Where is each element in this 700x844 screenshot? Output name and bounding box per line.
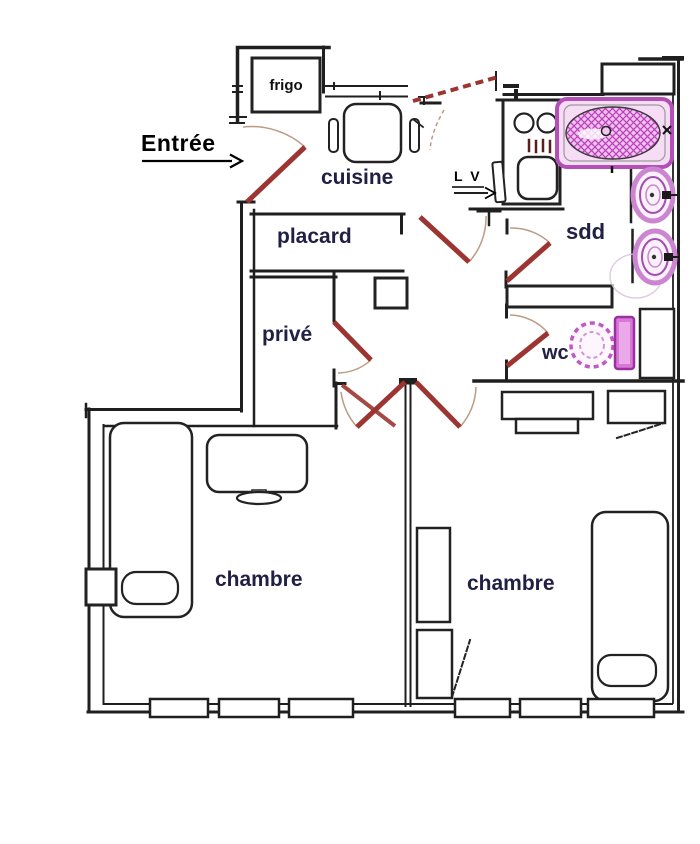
bathtub-icon: [557, 99, 672, 173]
kitchen-table-icon: [344, 104, 401, 162]
entrance-door-arc: [243, 127, 305, 147]
floor-plan: Entrée frigo cuisine L V placard privé s…: [0, 0, 700, 844]
window-icon: [520, 699, 581, 717]
lv-arrow: [452, 187, 495, 199]
window-icon: [455, 699, 510, 717]
entree-label: Entrée: [141, 130, 216, 157]
kitchen-door-arc: [430, 110, 444, 150]
desk-icon: [502, 392, 593, 419]
entrance-door: [247, 147, 305, 202]
desk-drawer: [516, 419, 578, 433]
window-icon: [289, 699, 353, 717]
pillow: [122, 572, 178, 604]
frigo-label: frigo: [252, 58, 320, 112]
window-icon: [588, 699, 654, 717]
sdd-label: sdd: [566, 219, 605, 245]
pillow: [598, 655, 656, 686]
placard-label: placard: [277, 225, 352, 249]
washbasin-icon: [610, 231, 680, 298]
radiator-shelf-icon: [507, 286, 612, 307]
right-bedroom-door: [416, 382, 460, 427]
wardrobe-open-door: [452, 640, 470, 697]
wc-closet: [640, 309, 674, 378]
wall-box: [86, 569, 116, 605]
floor-plan-drawing: [0, 0, 700, 844]
lave-vaisselle-label: L V: [454, 168, 482, 184]
window-icon: [150, 699, 208, 717]
toilet-icon: [571, 317, 634, 369]
right-bedroom-door-arc: [460, 387, 476, 427]
annotations: [142, 155, 495, 199]
hall-kitchen-door: [420, 217, 469, 262]
kitchen-door: [413, 77, 498, 101]
left-bedroom-door: [342, 385, 395, 426]
cuisine-label: cuisine: [321, 166, 393, 190]
table-base: [237, 492, 281, 504]
cabinet: [608, 391, 665, 423]
window-icon: [219, 699, 279, 717]
chambre-right-label: chambre: [467, 572, 555, 596]
sdd-door-arc: [510, 228, 550, 243]
prive-door-arc: [338, 360, 371, 373]
pedestal-table-icon: [207, 435, 307, 492]
prive-label: privé: [262, 323, 312, 347]
wardrobe-icon: [417, 528, 450, 622]
prive-door: [334, 322, 371, 360]
stove-icon: [515, 114, 534, 133]
stove-icon: [538, 114, 557, 133]
windows: [150, 699, 654, 717]
hall-kitchen-door-arc: [469, 216, 486, 262]
sdd-door: [507, 243, 550, 281]
chair-icon: [329, 119, 338, 152]
wardrobe-icon: [417, 630, 452, 698]
kitchen-sink-icon: [518, 157, 557, 199]
cabinet-open-door: [617, 423, 664, 438]
wc-door-arc: [510, 315, 548, 333]
wc-label: wc: [542, 342, 569, 365]
chambre-left-label: chambre: [215, 568, 303, 592]
dishwasher-icon: [492, 162, 505, 203]
hall-column: [375, 278, 407, 308]
washbasin-icon: [633, 169, 678, 221]
